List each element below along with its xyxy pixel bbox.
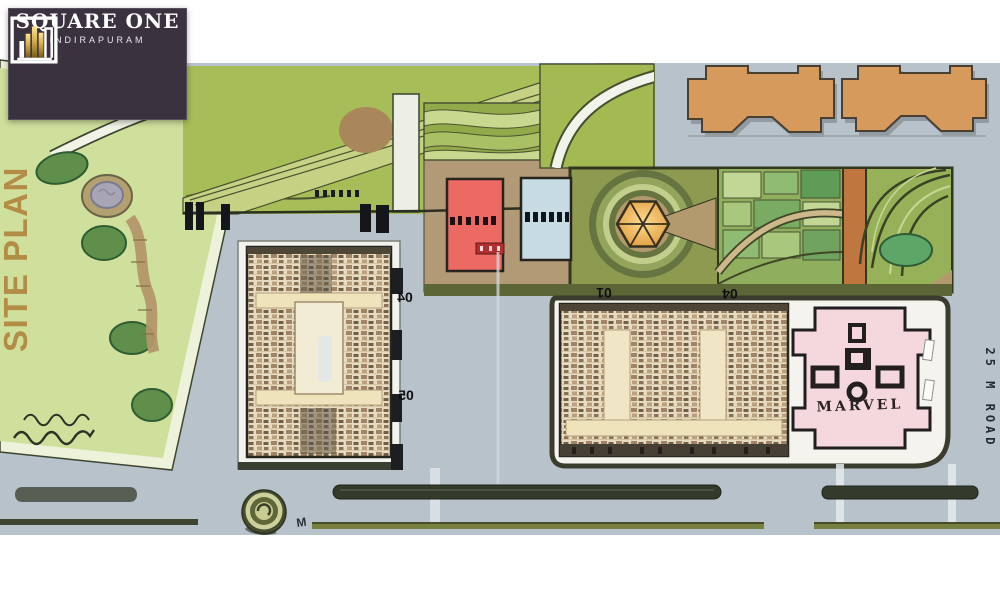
tower-label-05: 05 xyxy=(398,387,414,403)
compass-badge-icon xyxy=(242,490,286,534)
earth-patch xyxy=(339,107,393,153)
site-plan-title: SITE PLAN xyxy=(0,166,34,352)
tower-label-01: 01 xyxy=(596,285,612,301)
road-name-label: 25 M ROAD xyxy=(983,347,997,448)
orange-strip xyxy=(843,168,866,292)
pond xyxy=(82,175,132,217)
tower-label-04b: 04 xyxy=(722,286,738,302)
entry-marker-m: M xyxy=(295,515,307,530)
tower-label-04: 04 xyxy=(397,289,413,305)
site-plan-canvas: SITE PLAN xyxy=(0,0,1000,600)
frond-garden xyxy=(860,168,952,292)
canopy-tree xyxy=(880,234,932,266)
building-logo-icon xyxy=(9,15,59,65)
median-bar-center xyxy=(333,485,721,499)
marvel-label: MARVEL xyxy=(816,396,903,415)
curved-walk-garden xyxy=(540,64,656,168)
strip-base-shadow xyxy=(424,284,952,296)
entry-path xyxy=(393,94,419,212)
bottom-margin xyxy=(0,535,1000,600)
logo-card: SQUARE ONE INDIRAPURAM xyxy=(8,8,187,120)
logo-subtitle: INDIRAPURAM xyxy=(49,35,145,45)
amenity-strip xyxy=(570,168,952,292)
garden-grid xyxy=(718,168,843,292)
east-compound: MARVEL xyxy=(552,298,948,466)
terraced-garden xyxy=(424,103,540,160)
median-bar-east xyxy=(822,486,978,499)
median-bar-west xyxy=(15,487,137,502)
